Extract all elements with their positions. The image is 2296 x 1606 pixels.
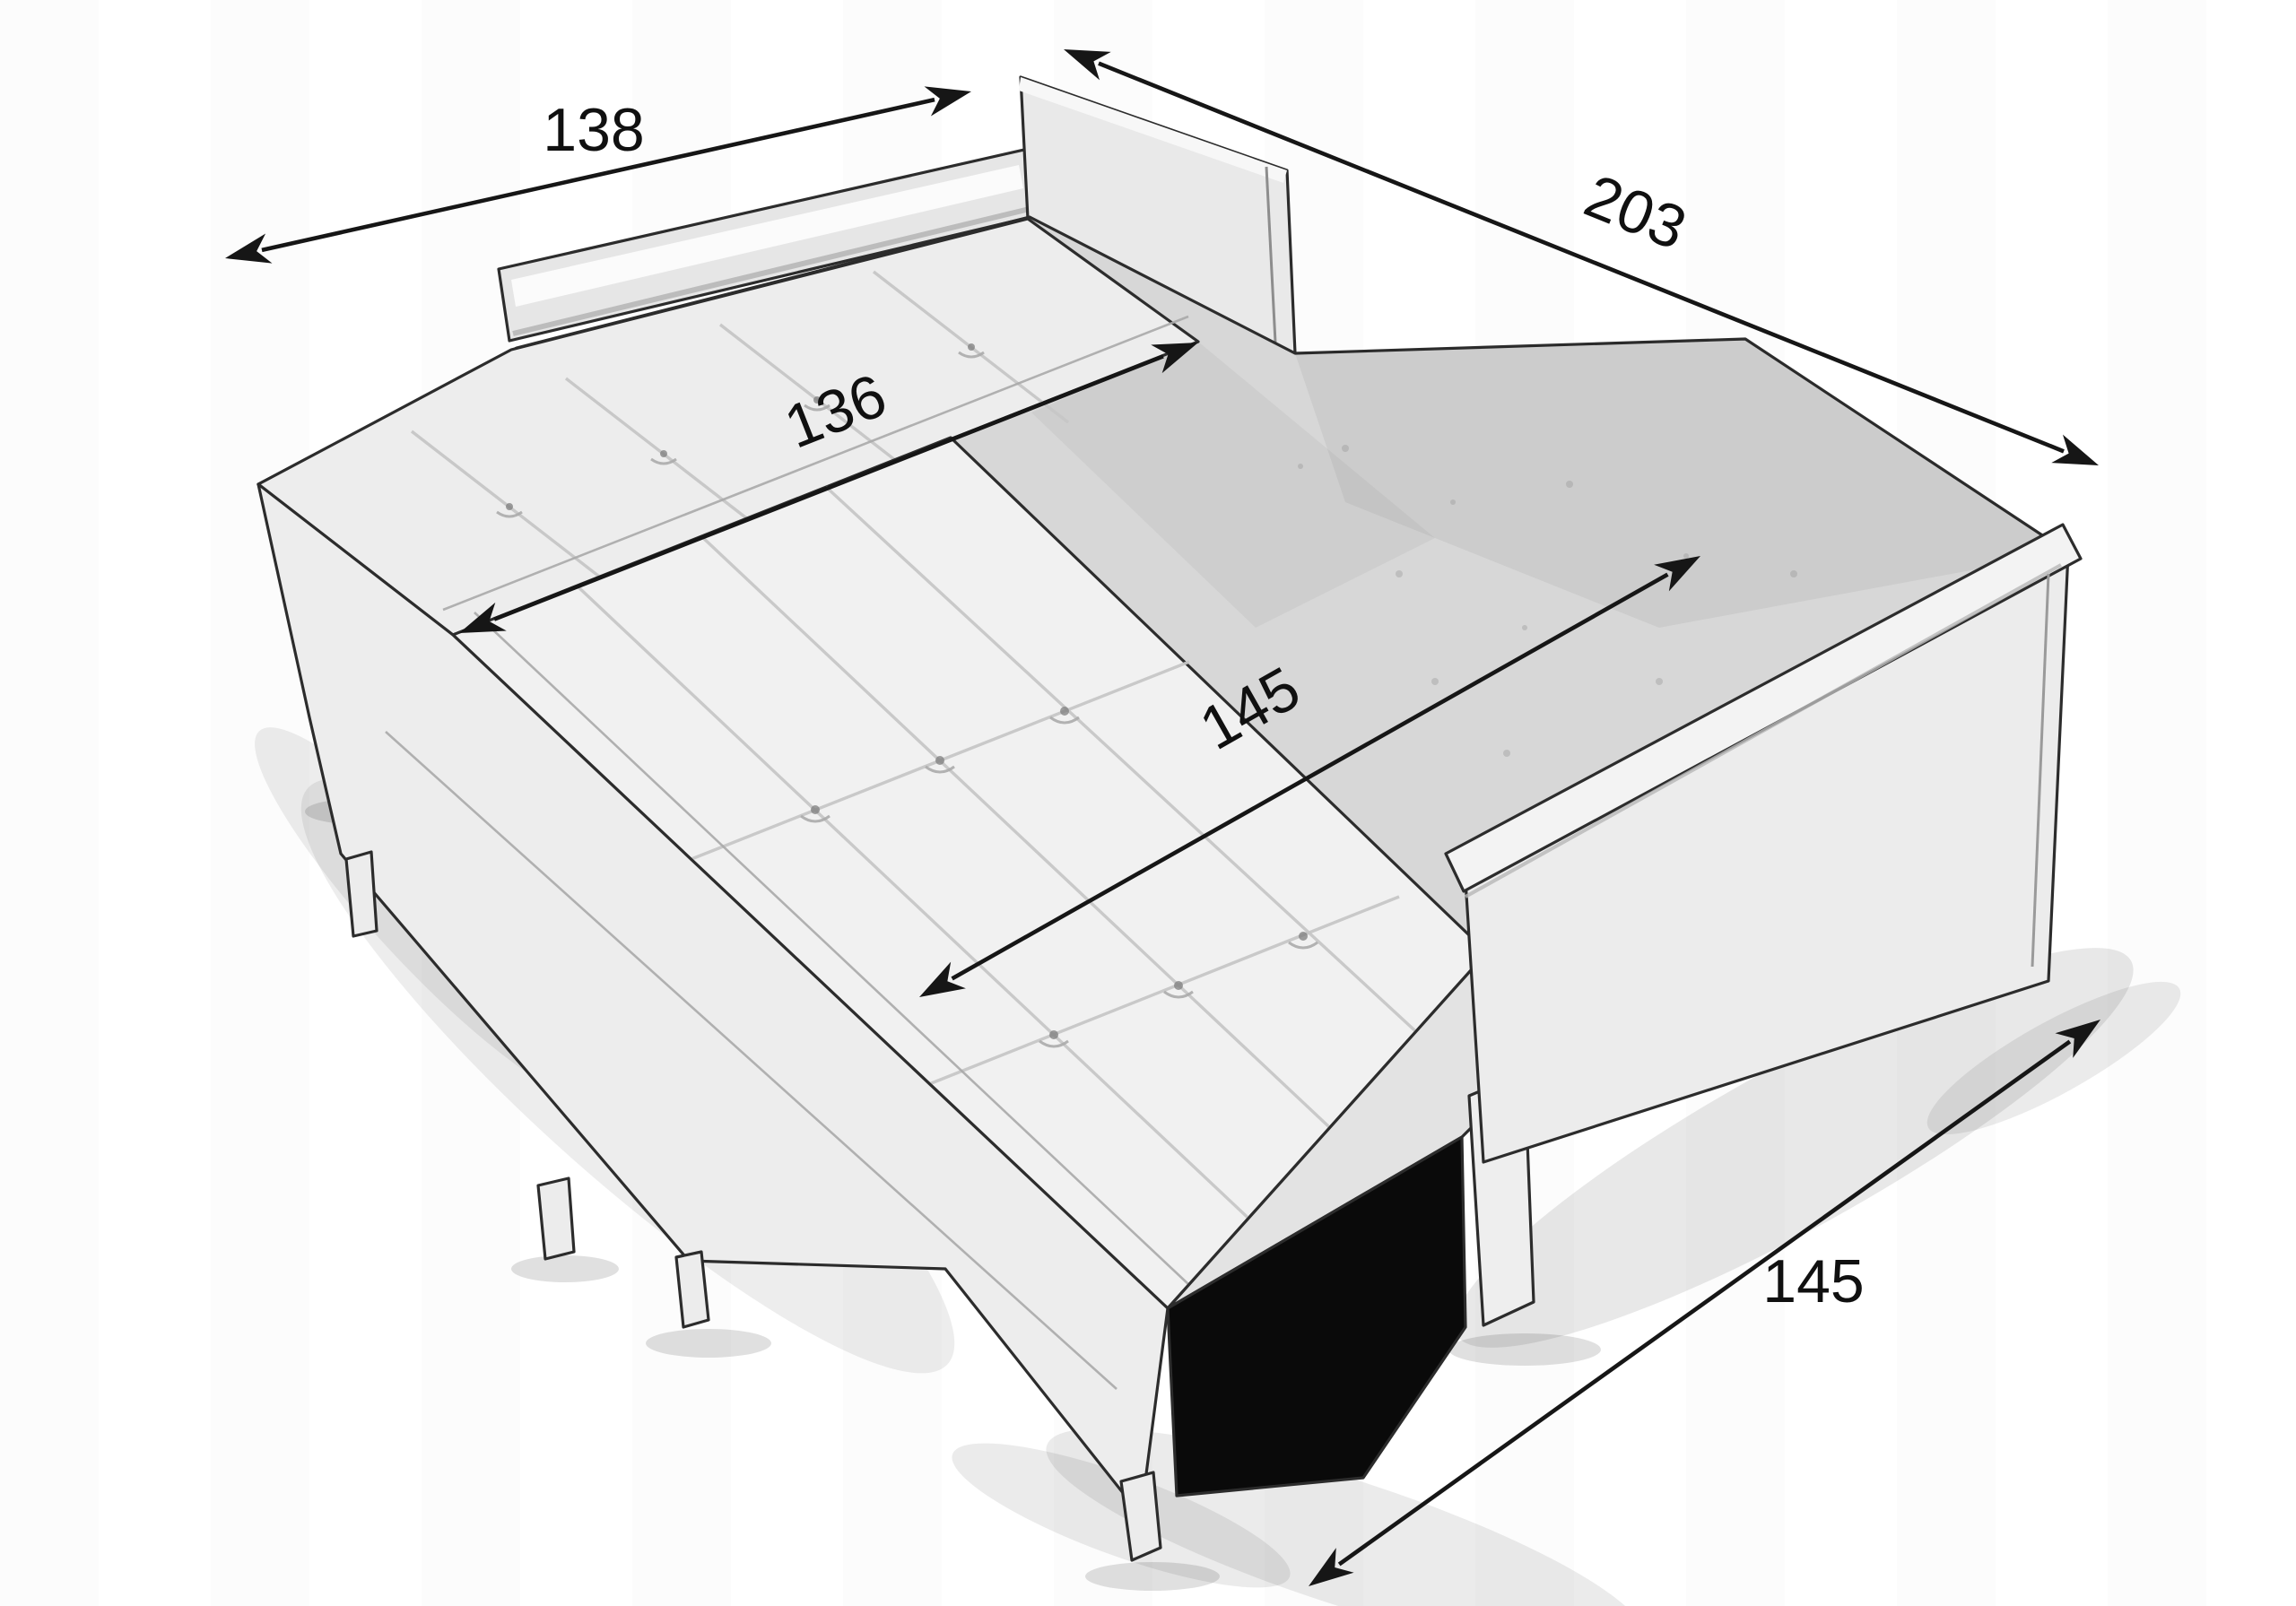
dim-label-back-width: 138	[543, 96, 644, 164]
sofa-bed-dimension-diagram: 138 203 136 145 145	[0, 0, 2296, 1606]
dim-label-sleeping-depth-front: 145	[1762, 1247, 1864, 1315]
chaise-leg	[346, 852, 377, 936]
front-leg-left	[538, 1178, 574, 1259]
dimension-drawing-page: 138 203 136 145 145	[0, 0, 2296, 1606]
front-leg-middle	[676, 1252, 709, 1327]
dim-label-total-length: 203	[1576, 161, 1696, 263]
